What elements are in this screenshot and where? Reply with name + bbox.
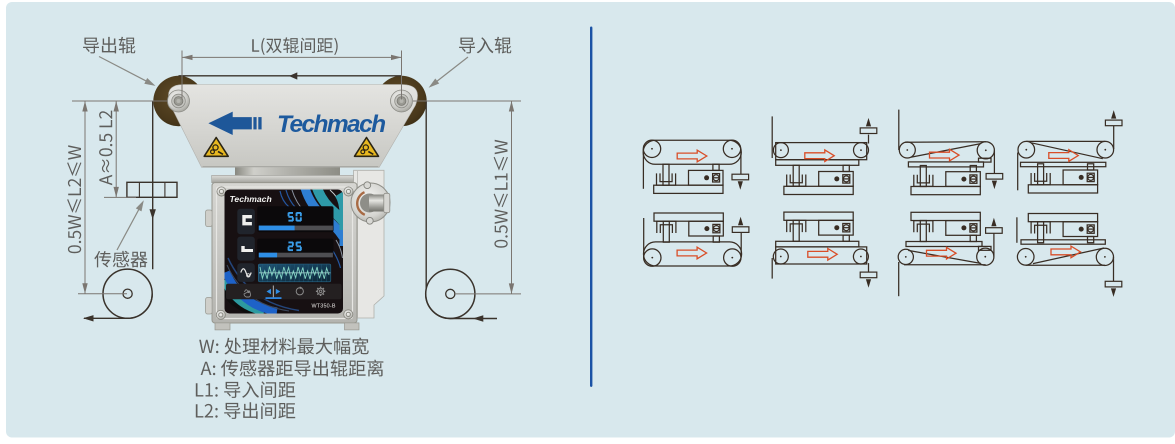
svg-text:Techmach: Techmach — [277, 111, 385, 138]
svg-text:Techmach: Techmach — [230, 194, 272, 204]
svg-text:WT350-B: WT350-B — [312, 304, 336, 310]
